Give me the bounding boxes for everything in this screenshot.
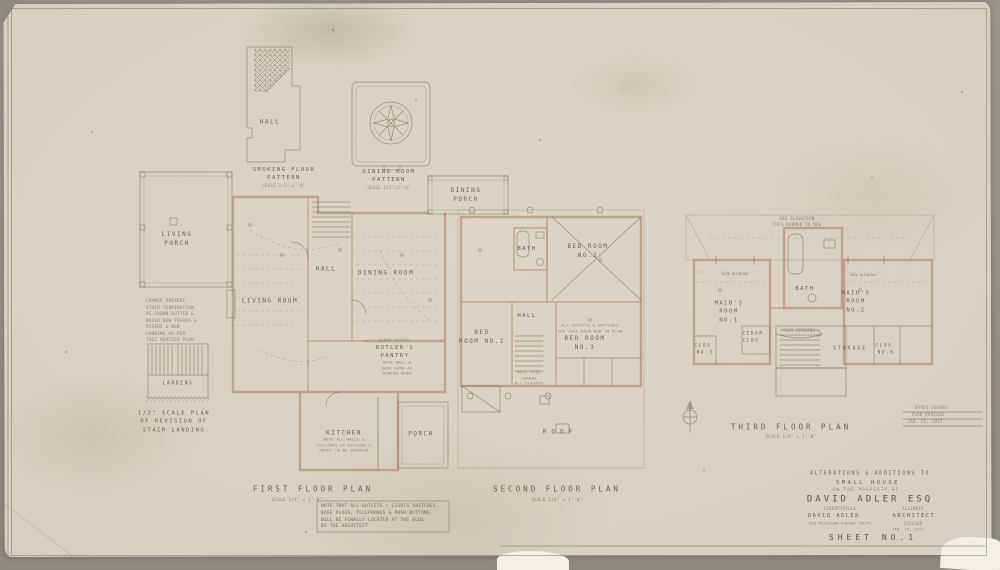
room-label-bath-second: BATH [517, 245, 536, 253]
new-window-label-left: NEW WINDOW [722, 271, 748, 277]
ink-specks [65, 29, 963, 533]
dates-box-line-1: DATES ISSUED [915, 405, 948, 411]
this-opening-note: THIS OPENING [783, 328, 816, 334]
room-label-maids-room-2: MAID'S ROOM NO.2 [842, 290, 871, 315]
roof-label: ROOF [543, 428, 577, 437]
title-block-architect-city: CHICAGO [904, 521, 923, 527]
room-label-butlers-pantry: BUTLER'S PANTRY [376, 344, 415, 361]
new-window-label-right: NEW WINDOW [850, 272, 876, 278]
room-label-storage: STORAGE [833, 345, 867, 352]
first-floor-plan-title: FIRST FLOOR PLAN [253, 483, 373, 494]
room-label-porch: PORCH [408, 430, 434, 439]
third-floor-plan-title: THIRD FLOOR PLAN [731, 421, 851, 432]
room-label-closet-6: CLOS. NO.6 [875, 343, 896, 357]
room-label-bed-room-2: BED ROOM NO.2 [568, 242, 609, 260]
third-floor-plan-scale: SCALE 1/4" = 1'-0" [766, 434, 817, 440]
pantry-note: NOTE WALL & BASE SAME AS DINING ROOM [381, 359, 412, 376]
stair-change-note: NOTE THIS CHANGE ALL PLASTER [515, 369, 543, 386]
room-label-dining-room: DINING ROOM [358, 269, 414, 278]
first-floor-plan-scale: SCALE 1/4" = 1'-0" [272, 497, 323, 503]
title-block-architect-address: 650 MICHIGAN AVENUE SOUTH [809, 521, 871, 526]
room-label-dining-porch: DINING PORCH [451, 186, 482, 204]
room-label-hall-first: HALL [316, 265, 336, 274]
smoking-pattern-title: SMOKING FLOOR PATTERN [253, 166, 316, 183]
room-label-bath-third: BATH [795, 285, 814, 293]
second-floor-plan-scale: SCALE 1/4" = 1'-0" [532, 497, 583, 503]
stair-landing-label: LANDING [163, 380, 194, 387]
room-label-closet-3: CLOS. NO.3 [694, 343, 715, 357]
dining-pattern-scale: SCALE 1/2"=1'-0" [367, 185, 410, 191]
dormer-note: SEE ELEVATION THIS DORMER IS NEW [773, 216, 822, 228]
dining-pattern-title: DINING ROOM PATTERN [363, 168, 416, 185]
room-label-maids-room-1: MAID'S ROOM NO.1 [715, 300, 744, 325]
bed-room-3-note: ALL OUTLETS & SWITCHES FOR THIS ROOM NOW… [558, 322, 623, 333]
title-block-architect-role: ARCHITECT [893, 513, 936, 521]
floor-outlet-label: FLOOR OUTLET [378, 337, 409, 343]
north-arrow [683, 400, 697, 432]
dates-box-line-2: PLAN REVISED [912, 412, 945, 418]
stair-detail-title: 1/2" SCALE PLAN OF REVISION OF STAIR LAN… [138, 410, 210, 435]
kitchen-note: NOTE ALL WALLS & CEILINGS OF KITCHEN & E… [317, 436, 371, 453]
title-block-owner-city: LIBERTYVILLE [824, 506, 857, 512]
room-label-hall-second: HALL [517, 312, 536, 320]
title-block-project-line-1: ALTERATIONS & ADDITIONS TO [810, 470, 930, 478]
dining-room-pattern-inset [352, 82, 430, 170]
dates-box-line-3: JAN. 25, 1917 [907, 419, 942, 425]
second-floor-plan-title: SECOND FLOOR PLAN [493, 483, 621, 494]
title-block-owner-name: DAVID ADLER ESQ [807, 493, 933, 507]
room-label-bed-room-1: BED ROOM NO.1 [459, 328, 505, 346]
stair-landing-detail-drawing [146, 344, 210, 402]
title-block-project-line-3: ON THE PROPERTY OF [833, 487, 900, 493]
smoking-room-pattern-inset [247, 47, 300, 162]
scanned-blueprint-sheet: HALL SMOKING FLOOR PATTERN SCALE 1/2"=1'… [0, 0, 1000, 570]
room-label-living-porch: LIVING PORCH [162, 230, 193, 248]
room-label-bed-room-3: BED ROOM NO.3 [565, 334, 606, 352]
title-block-owner-state: ILLINOIS [902, 506, 924, 512]
general-note-text: NOTE THAT ALL OUTLETS ( LIGHTS SWITCHES,… [321, 504, 439, 531]
smoking-pattern-scale: SCALE 1/2"=1'-0" [262, 183, 305, 189]
room-label-living-room: LIVING ROOM [242, 297, 298, 306]
title-block-architect-name: DAVID ADLER [808, 513, 860, 521]
hall-inset-label: HALL [260, 118, 280, 127]
title-block-sheet-number: SHEET NO.1 [829, 532, 917, 544]
stair-detail-note: CHANGE PRESENT STAIR TERMINATION AS SHOW… [146, 298, 197, 344]
room-label-cedar-closet: CEDAR CLOS. [742, 331, 763, 345]
